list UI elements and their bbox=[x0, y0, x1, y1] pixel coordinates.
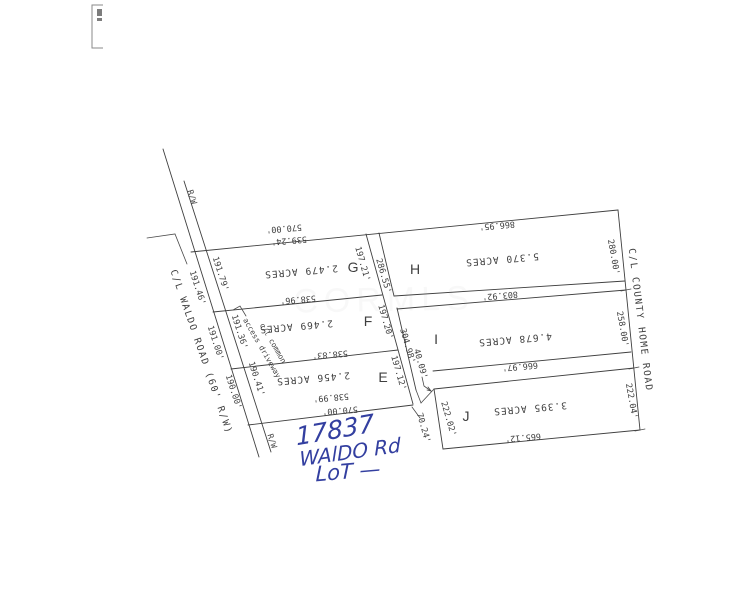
label-rw-top: R/W bbox=[185, 189, 198, 206]
margin-mark bbox=[92, 5, 103, 48]
nw-corner-jog bbox=[147, 234, 187, 264]
dim-h-east: 280.00' bbox=[605, 238, 621, 275]
dim-i-south: 666.97' bbox=[502, 359, 539, 372]
dim-e-south-538: 538.99' bbox=[313, 390, 350, 403]
parcel-h-acres: 5.370 ACRES bbox=[465, 250, 540, 267]
parcel-j-acres: 3.395 ACRES bbox=[493, 399, 568, 416]
notch-line-a bbox=[416, 390, 421, 403]
labels-layer: 570.00'539.24'2.479 ACRESG538.96'2.469 A… bbox=[168, 189, 655, 487]
dim-j-east: 222.04' bbox=[623, 382, 639, 419]
parcel-h-letter: H bbox=[410, 261, 420, 277]
dim-north-539: 539.24' bbox=[271, 233, 308, 246]
margin-mark-glyph bbox=[97, 9, 102, 16]
handwritten-lot: LoT — bbox=[315, 456, 380, 487]
parcel-e-acres: 2.456 ACRES bbox=[276, 369, 351, 386]
parcel-i-letter: I bbox=[434, 331, 438, 347]
dim-notch-70: 70.24' bbox=[414, 412, 432, 444]
margin-mark-glyph bbox=[97, 18, 102, 21]
dim-h-south: 803.92' bbox=[482, 288, 519, 301]
county-home-road-name: C/L COUNTY HOME ROAD bbox=[626, 248, 655, 393]
watermark: CORMLS bbox=[293, 279, 475, 320]
parcel-g-acres: 2.479 ACRES bbox=[264, 262, 339, 279]
parcel-j-letter: J bbox=[463, 408, 470, 424]
plat-drawing: 570.00'539.24'2.479 ACRESG538.96'2.469 A… bbox=[0, 0, 754, 600]
dim-i-east: 258.00' bbox=[614, 310, 630, 347]
parcel-i-acres: 4.678 ACRES bbox=[478, 330, 553, 347]
dim-h-north: 866.95' bbox=[479, 218, 516, 231]
parcel-e-letter: E bbox=[378, 369, 387, 385]
label-rw-bottom: R/W bbox=[265, 433, 278, 450]
dim-e-frontage: 190.41' bbox=[246, 360, 267, 397]
dim-f-south: 538.83' bbox=[312, 347, 349, 360]
dim-j-south: 665.12' bbox=[505, 430, 542, 443]
j-west-line bbox=[434, 389, 443, 449]
j-north-line bbox=[434, 368, 634, 389]
waldo-centerline bbox=[163, 149, 259, 457]
north-boundary-line bbox=[191, 210, 618, 252]
notch-line-b bbox=[421, 389, 434, 403]
dim-g-frontage: 191.79' bbox=[210, 255, 231, 292]
dim-north-570: 570.00' bbox=[266, 221, 303, 234]
dim-j-west: 222.02' bbox=[438, 400, 457, 437]
dim-notch-40: 40.09' bbox=[411, 348, 429, 380]
